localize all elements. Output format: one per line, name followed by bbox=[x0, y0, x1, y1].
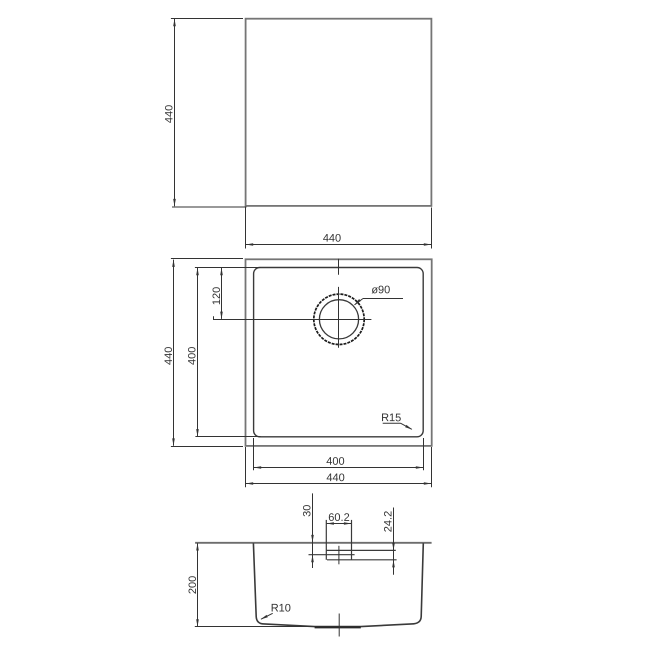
svg-text:R15: R15 bbox=[381, 412, 401, 424]
svg-text:400: 400 bbox=[186, 347, 198, 365]
svg-text:120: 120 bbox=[211, 287, 223, 305]
svg-text:200: 200 bbox=[187, 576, 199, 594]
svg-text:30: 30 bbox=[301, 505, 313, 517]
svg-text:60.2: 60.2 bbox=[328, 512, 349, 524]
svg-text:R10: R10 bbox=[271, 602, 291, 614]
svg-text:440: 440 bbox=[164, 105, 176, 123]
svg-text:440: 440 bbox=[163, 347, 175, 365]
svg-text:ø90: ø90 bbox=[371, 284, 390, 296]
svg-text:440: 440 bbox=[323, 233, 341, 245]
svg-text:24.2: 24.2 bbox=[382, 511, 394, 532]
svg-text:400: 400 bbox=[326, 456, 344, 468]
svg-text:440: 440 bbox=[326, 472, 344, 484]
